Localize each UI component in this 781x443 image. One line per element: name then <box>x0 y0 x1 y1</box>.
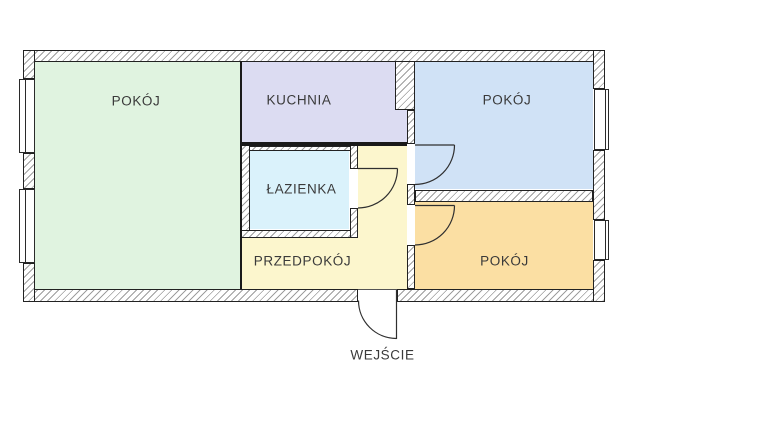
room-label-bathroom: ŁAZIENKA <box>266 182 336 197</box>
line-entrance-threshold <box>358 289 397 290</box>
wall-right-lower <box>593 260 605 302</box>
wall-mid-upper <box>407 110 415 144</box>
wall-kitchen-right-wide <box>395 61 415 110</box>
bathroom-wall-left <box>241 142 250 238</box>
window-pane-line <box>25 190 26 263</box>
room-bedroom-bottom[interactable] <box>415 201 593 289</box>
room-label-bedroom-top: POKÓJ <box>483 93 532 108</box>
wall-mid-lower <box>407 245 415 290</box>
window-right-lower[interactable] <box>594 220 610 260</box>
line-living-right-partition <box>240 61 242 289</box>
wall-right-middle <box>593 150 605 220</box>
room-label-bedroom-bottom: POKÓJ <box>480 254 529 269</box>
bathroom-wall-right-upper <box>350 142 359 169</box>
window-right-upper[interactable] <box>594 89 610 151</box>
wall-left-lower <box>23 263 35 302</box>
entrance-label: WEJŚCIE <box>350 348 414 363</box>
wall-divider-bedrooms <box>415 190 593 202</box>
window-left-upper[interactable] <box>19 79 35 154</box>
room-bedroom-top[interactable] <box>415 61 593 189</box>
room-label-kitchen: KUCHNIA <box>267 92 332 107</box>
bathroom-wall-bottom <box>241 230 358 239</box>
bathroom-wall-top <box>241 146 358 152</box>
door-entrance[interactable] <box>359 290 397 339</box>
wall-mid-between-doors <box>407 184 415 205</box>
wall-left-upper <box>23 50 35 79</box>
room-label-hallway: PRZEDPOKÓJ <box>254 253 352 268</box>
wall-left-middle <box>23 153 35 189</box>
room-label-living: POKÓJ <box>112 93 161 108</box>
window-pane-line <box>605 221 606 259</box>
window-pane-line <box>25 80 26 153</box>
window-pane-line <box>605 90 606 150</box>
bathroom-wall-right-lower <box>350 208 359 238</box>
line-kitchen-bottom <box>241 142 407 146</box>
wall-top <box>23 50 605 62</box>
wall-bottom-right-segment <box>397 289 605 302</box>
wall-right-upper <box>593 50 605 89</box>
wall-bottom-left-segment <box>23 289 358 302</box>
floor-plan: POKÓJ KUCHNIA POKÓJ ŁAZIENKA PRZEDPOKÓJ … <box>0 0 781 443</box>
window-left-lower[interactable] <box>19 189 35 264</box>
